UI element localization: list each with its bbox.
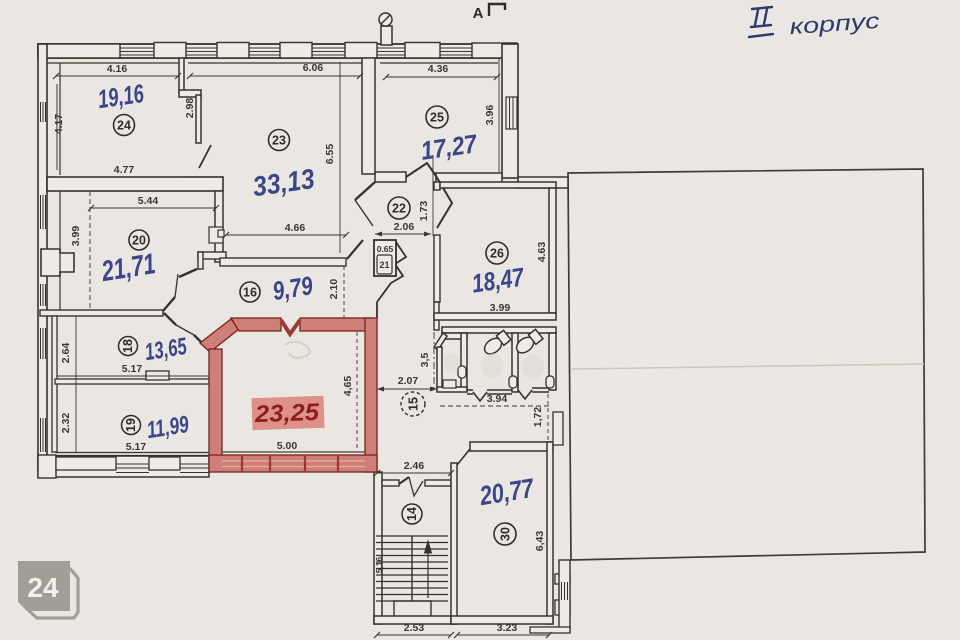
svg-text:1.73: 1.73 [418,201,430,222]
svg-text:4.63: 4.63 [536,242,548,263]
svg-text:26: 26 [490,247,504,261]
svg-text:16: 16 [243,286,257,300]
svg-text:5.17: 5.17 [126,441,147,453]
svg-text:2.32: 2.32 [60,413,72,434]
svg-text:19,16: 19,16 [96,78,146,114]
svg-text:25: 25 [430,111,444,125]
svg-text:2.07: 2.07 [398,375,419,387]
svg-text:9,79: 9,79 [270,270,315,306]
svg-text:2.10: 2.10 [328,279,340,300]
svg-text:6,43: 6,43 [534,531,546,552]
svg-text:4.36: 4.36 [428,63,449,75]
svg-text:4.66: 4.66 [285,222,306,234]
svg-text:4,65: 4,65 [342,376,354,397]
svg-text:А: А [473,5,484,22]
svg-text:6.06: 6.06 [303,62,324,74]
svg-text:5.17: 5.17 [122,363,143,375]
svg-text:14: 14 [405,507,419,521]
svg-text:2.46: 2.46 [404,460,425,472]
svg-text:2.06: 2.06 [394,221,415,233]
svg-text:3.99: 3.99 [70,226,82,247]
svg-text:3.99: 3.99 [490,302,511,314]
svg-text:5.00: 5.00 [277,440,298,452]
svg-text:24: 24 [27,572,59,603]
svg-text:4.16: 4.16 [107,63,128,75]
svg-text:3.94: 3.94 [487,393,508,405]
svg-text:15: 15 [407,397,421,411]
svg-text:4.17: 4.17 [53,114,65,135]
svg-text:23,25: 23,25 [254,399,321,428]
svg-text:2.98: 2.98 [184,98,196,119]
svg-text:3.96: 3.96 [484,105,496,126]
svg-text:2.64: 2.64 [60,343,72,364]
svg-text:22: 22 [392,202,406,216]
svg-text:21: 21 [379,260,389,270]
svg-text:3,5: 3,5 [419,353,431,368]
svg-text:5,16: 5,16 [374,556,384,573]
svg-text:4.77: 4.77 [114,164,135,176]
svg-text:0.65: 0.65 [377,244,394,254]
svg-text:18: 18 [121,339,135,353]
svg-text:23: 23 [272,134,286,148]
svg-text:24: 24 [117,119,131,133]
svg-text:6.55: 6.55 [324,144,336,165]
svg-text:2.53: 2.53 [404,622,425,634]
svg-text:19: 19 [124,418,138,432]
svg-text:1,72: 1,72 [532,407,544,428]
svg-text:5.44: 5.44 [138,195,159,207]
svg-text:3.23: 3.23 [497,622,518,634]
svg-text:30: 30 [499,527,513,541]
svg-text:20: 20 [132,234,146,248]
